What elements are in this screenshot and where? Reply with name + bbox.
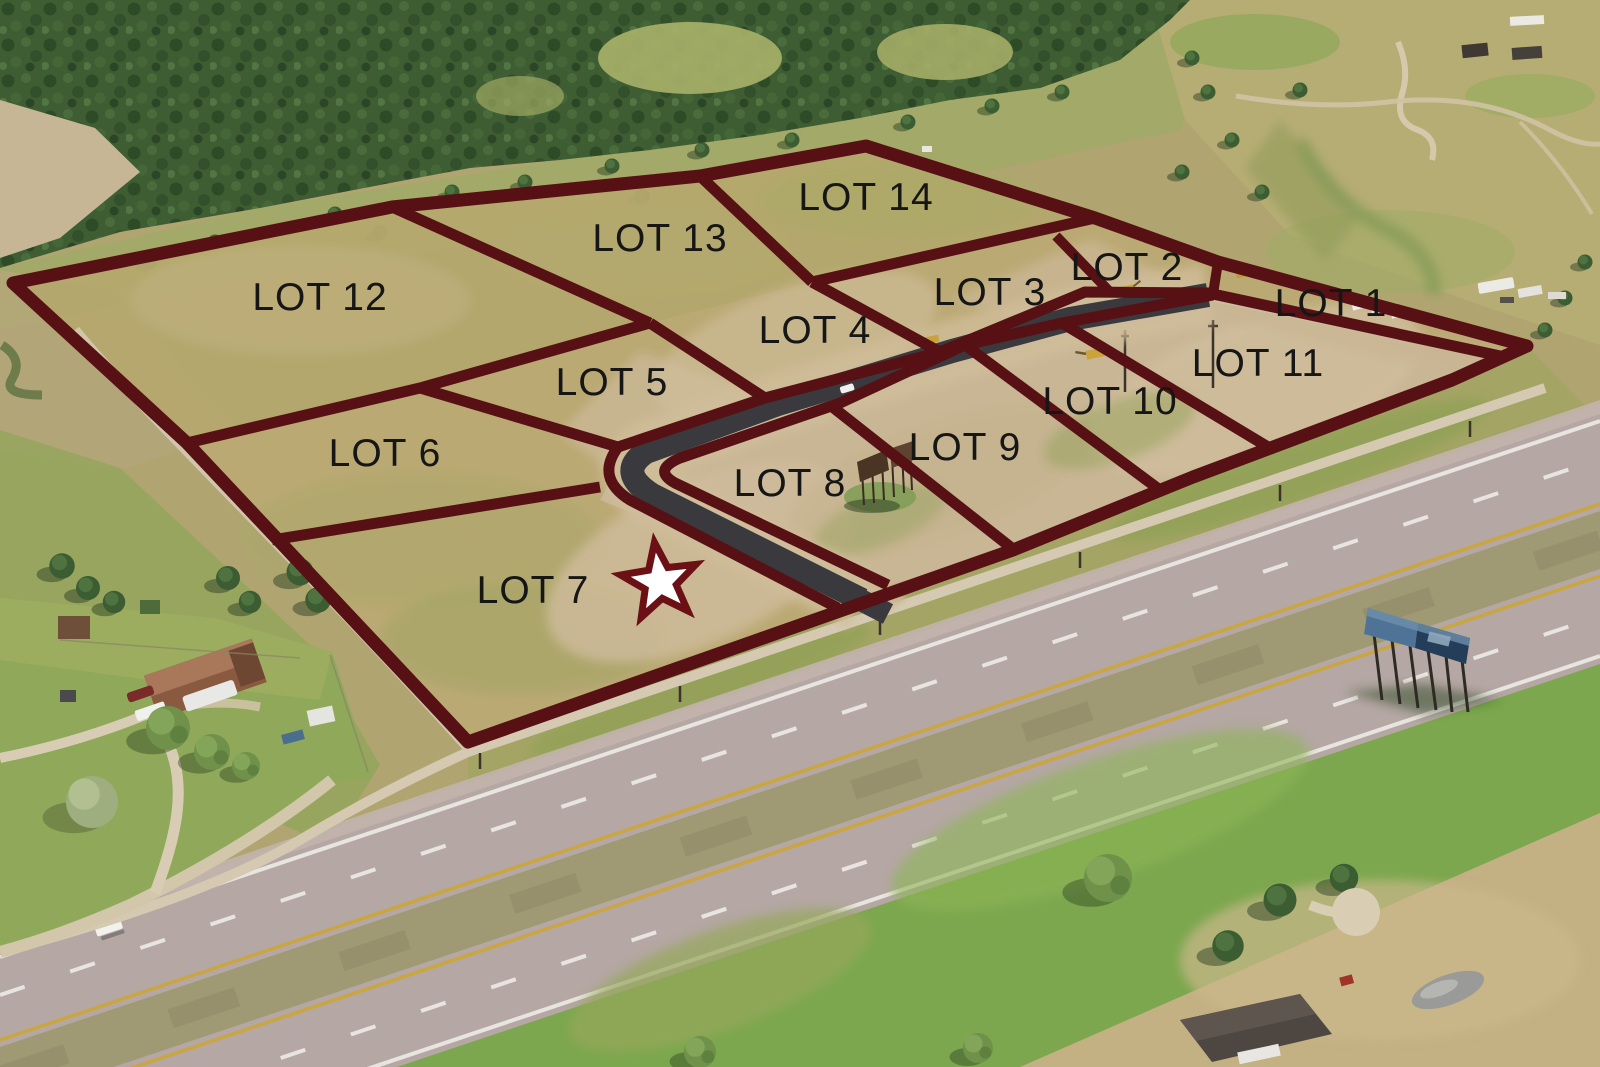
- lot-label-11: LOT 11: [1192, 342, 1324, 385]
- lot-label-3: LOT 3: [934, 271, 1047, 314]
- lot-label-12: LOT 12: [252, 276, 387, 319]
- lot-label-8: LOT 8: [734, 462, 847, 505]
- house-roof: [1512, 46, 1543, 60]
- aerial-photo: LOT 1LOT 2LOT 3LOT 4LOT 5LOT 6LOT 7LOT 8…: [0, 0, 1600, 1067]
- lot-label-14: LOT 14: [798, 176, 933, 219]
- lot-label-2: LOT 2: [1071, 246, 1184, 289]
- small-shed: [922, 146, 932, 152]
- lot-label-1: LOT 1: [1275, 282, 1388, 325]
- lot-label-13: LOT 13: [592, 217, 727, 260]
- aerial-photo-svg: LOT 1LOT 2LOT 3LOT 4LOT 5LOT 6LOT 7LOT 8…: [0, 0, 1600, 1067]
- shed: [58, 616, 90, 639]
- shed: [140, 600, 160, 614]
- house-roof: [1461, 43, 1488, 59]
- gray-car: [60, 690, 76, 702]
- lot-label-7: LOT 7: [477, 569, 590, 612]
- lot-label-5: LOT 5: [556, 361, 669, 404]
- lot-label-10: LOT 10: [1042, 380, 1177, 423]
- lot-label-9: LOT 9: [909, 426, 1022, 469]
- barn-roof: [1510, 15, 1544, 26]
- lot-label-4: LOT 4: [759, 309, 872, 352]
- lot-label-6: LOT 6: [329, 432, 442, 475]
